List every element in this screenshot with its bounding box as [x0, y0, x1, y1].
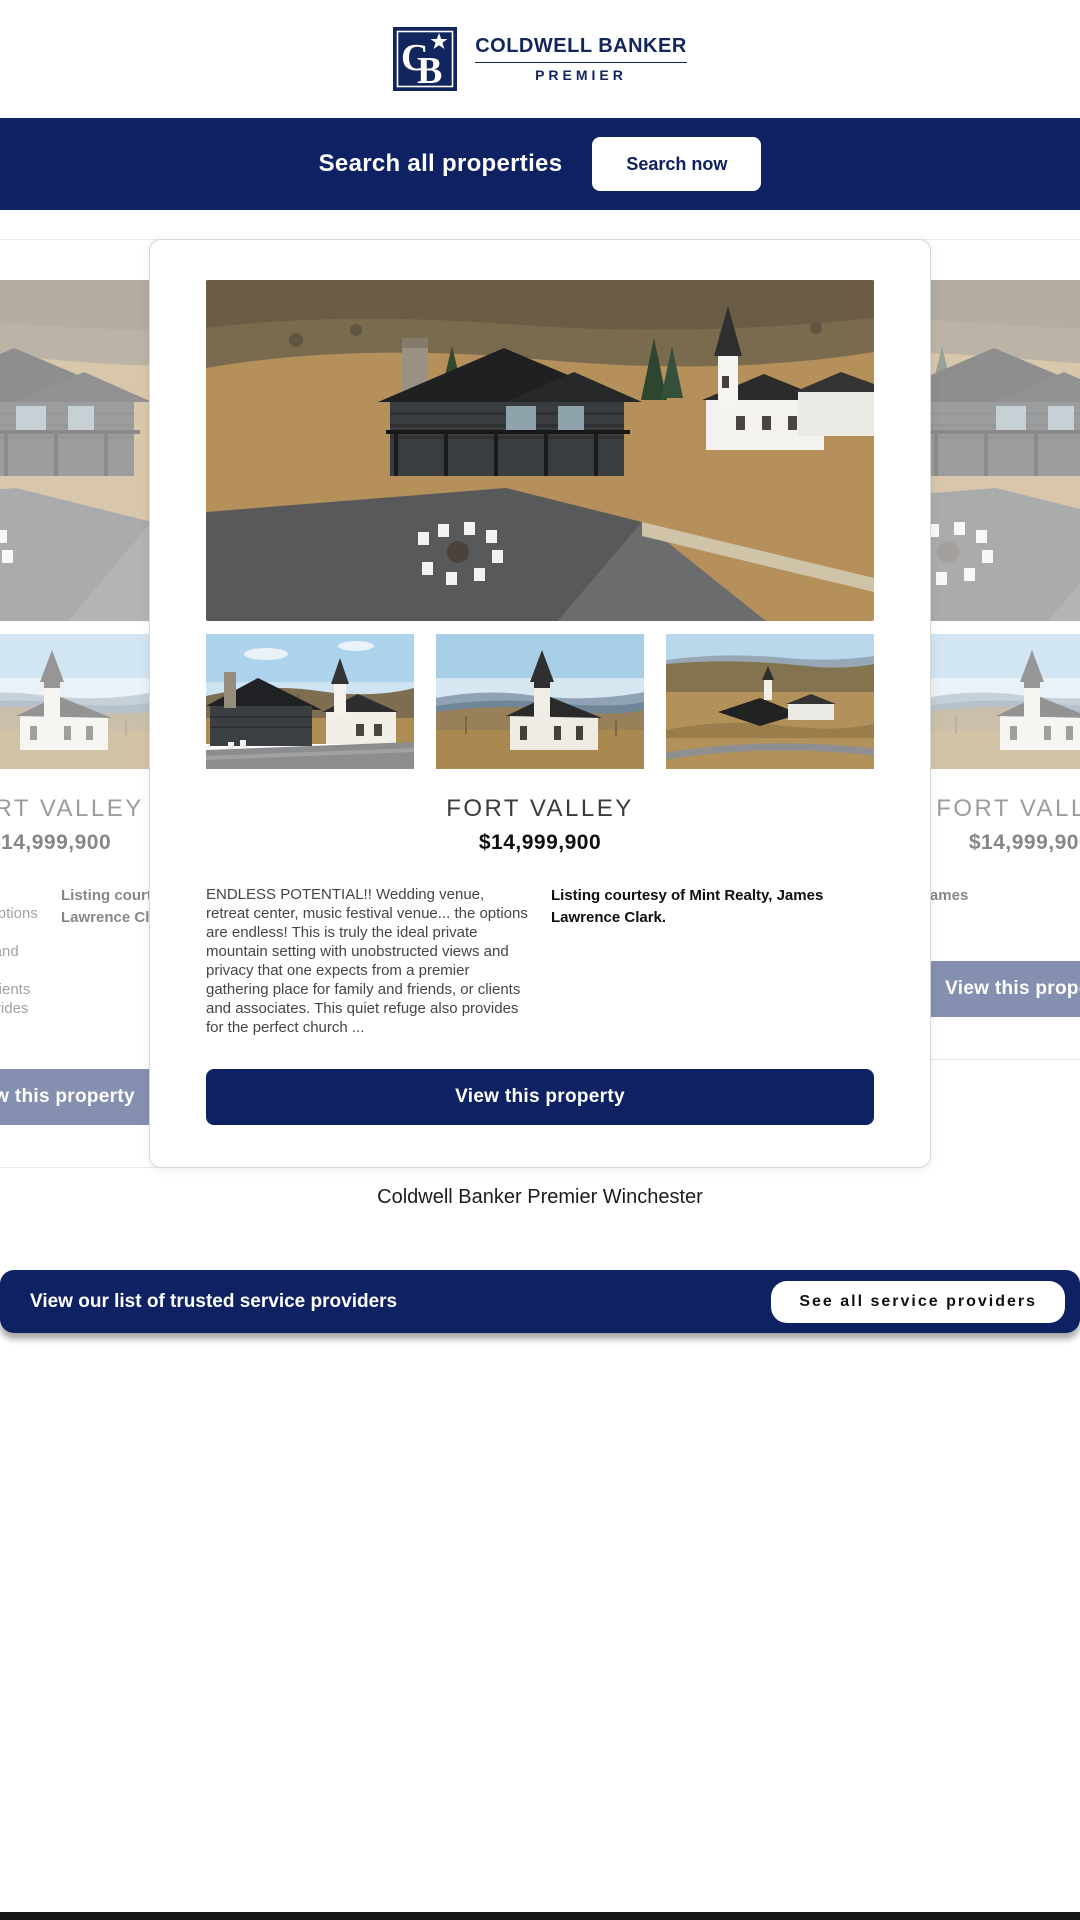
page: COLDWELL BANKER PREMIER Search all prope…	[0, 0, 1080, 1920]
property-description: ENDLESS POTENTIAL!! Wedding venue, retre…	[0, 885, 39, 1037]
property-thumbnail-2[interactable]	[436, 634, 644, 769]
service-providers-label: View our list of trusted service provide…	[30, 1291, 397, 1313]
property-body: ENDLESS POTENTIAL!! Wedding venue, retre…	[206, 885, 874, 1037]
search-now-button[interactable]: Search now	[592, 137, 761, 191]
property-description: ENDLESS POTENTIAL!! Wedding venue, retre…	[206, 885, 529, 1037]
property-title: FORT VALLEY	[206, 795, 874, 823]
view-property-button[interactable]: View this property	[206, 1069, 874, 1125]
coldwell-banker-logo-icon[interactable]	[393, 27, 457, 91]
brand-text: COLDWELL BANKER PREMIER	[475, 35, 687, 83]
brand-name: COLDWELL BANKER	[475, 35, 687, 63]
search-banner-label: Search all properties	[319, 150, 563, 178]
property-thumbnail-3[interactable]	[666, 634, 874, 769]
bottom-edge-bar	[0, 1912, 1080, 1920]
office-name: Coldwell Banker Premier Winchester	[0, 1186, 1080, 1209]
property-price: $14,999,900	[206, 831, 874, 855]
see-all-providers-button[interactable]: See all service providers	[771, 1281, 1065, 1323]
property-carousel: FORT VALLEY $14,999,900 ENDLESS POTENTIA…	[0, 210, 1080, 1170]
property-photo[interactable]	[206, 280, 874, 621]
search-banner: Search all properties Search now	[0, 118, 1080, 210]
property-thumbnail-2[interactable]	[926, 634, 1080, 769]
header: COLDWELL BANKER PREMIER	[0, 0, 1080, 118]
thumbnail-row	[206, 634, 874, 769]
listing-courtesy: Listing courtesy of Mint Realty, James L…	[551, 885, 874, 1037]
property-thumbnail-2[interactable]	[0, 634, 154, 769]
property-thumbnail-1[interactable]	[206, 634, 414, 769]
property-card-active: FORT VALLEY $14,999,900 ENDLESS POTENTIA…	[149, 239, 931, 1168]
service-providers-banner: View our list of trusted service provide…	[0, 1270, 1080, 1333]
brand-subname: PREMIER	[535, 67, 627, 83]
